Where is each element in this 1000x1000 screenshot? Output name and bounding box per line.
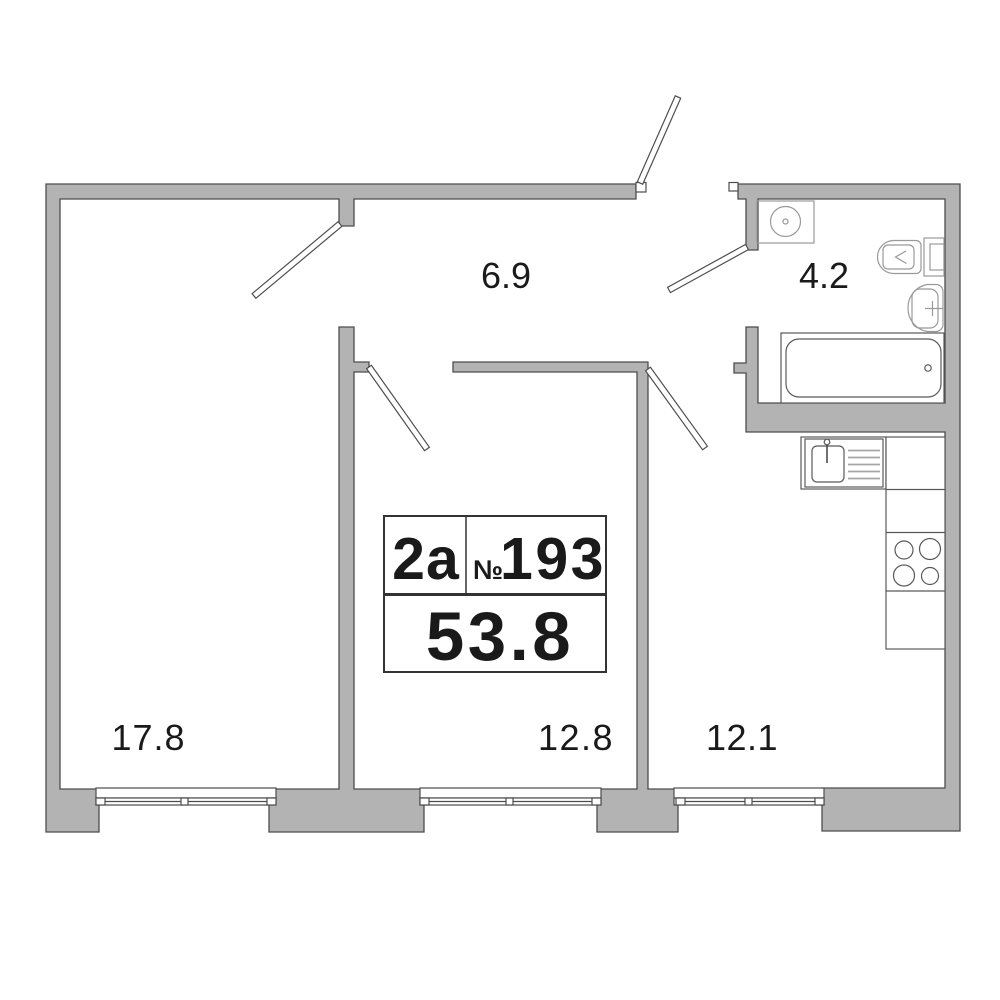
- svg-text:4.2: 4.2: [799, 255, 849, 296]
- svg-text:12.8: 12.8: [538, 717, 614, 758]
- svg-text:2a: 2a: [392, 526, 460, 592]
- svg-text:53.8: 53.8: [426, 598, 574, 675]
- svg-text:6.9: 6.9: [481, 255, 531, 296]
- svg-text:12.1: 12.1: [706, 717, 778, 758]
- svg-text:17.8: 17.8: [111, 717, 185, 758]
- svg-text:193: 193: [500, 526, 606, 592]
- svg-text:№: №: [473, 555, 503, 585]
